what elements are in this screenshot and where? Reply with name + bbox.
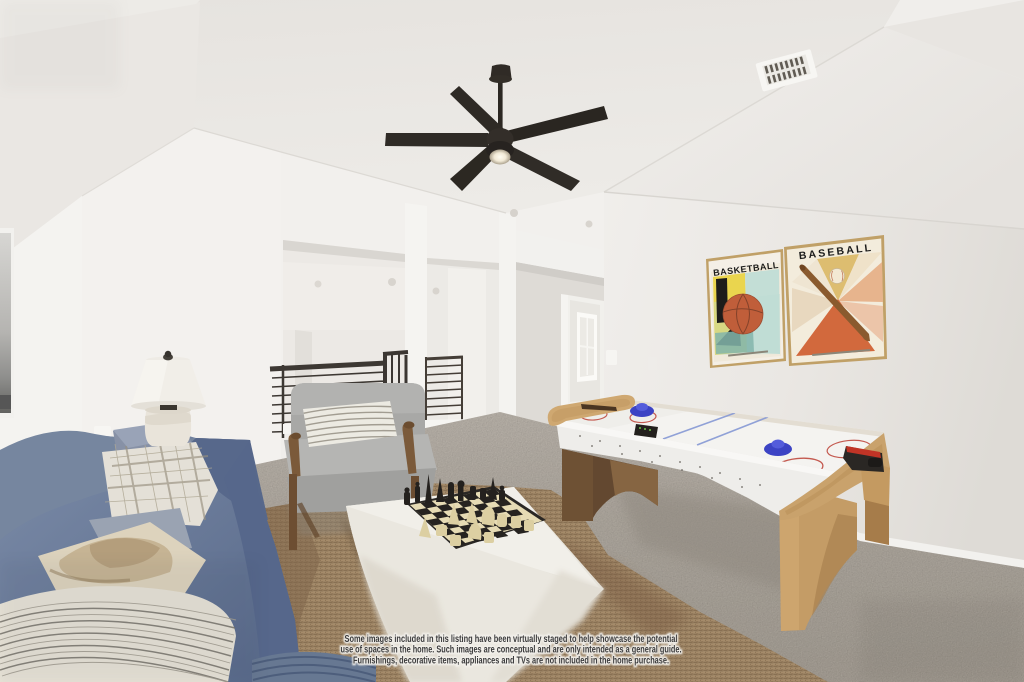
svg-text:use of spaces in the home. Suc: use of spaces in the home. Such images a… [341, 645, 682, 656]
svg-text:Some images included in this l: Some images included in this listing hav… [345, 634, 678, 645]
svg-text:Furnishings, decorative items,: Furnishings, decorative items, appliance… [353, 655, 669, 666]
